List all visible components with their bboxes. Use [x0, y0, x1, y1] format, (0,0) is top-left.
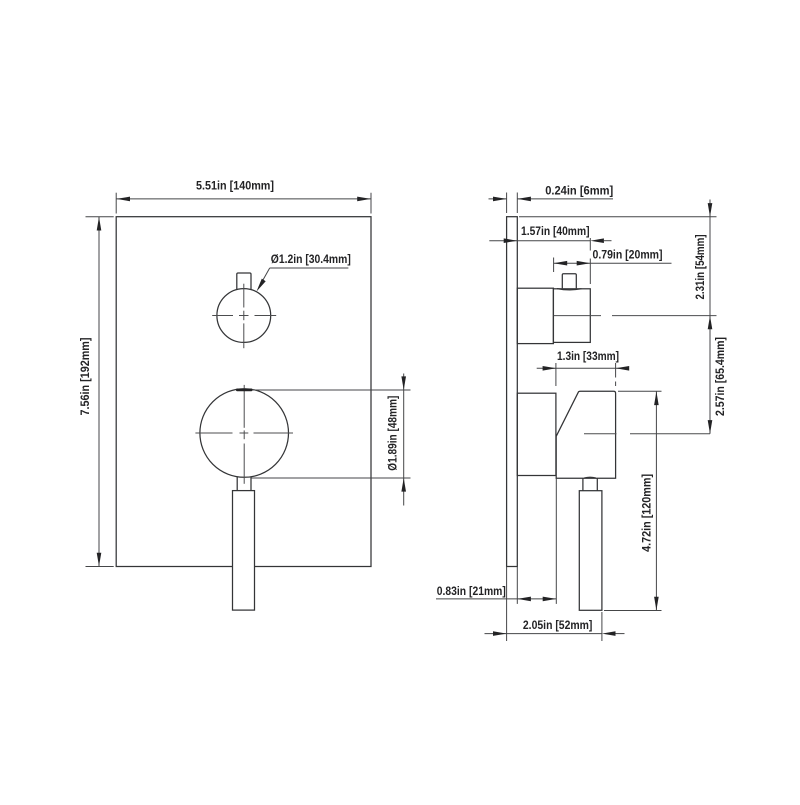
svg-text:0.83in [21mm]: 0.83in [21mm] — [437, 584, 506, 598]
svg-text:Ø1.89in [48mm]: Ø1.89in [48mm] — [386, 396, 400, 471]
svg-text:Ø1.2in [30.4mm]: Ø1.2in [30.4mm] — [271, 252, 351, 266]
svg-text:0.24in [6mm]: 0.24in [6mm] — [545, 184, 613, 198]
svg-text:4.72in [120mm]: 4.72in [120mm] — [639, 474, 653, 552]
svg-text:5.51in [140mm]: 5.51in [140mm] — [196, 179, 274, 193]
svg-text:2.31in [54mm]: 2.31in [54mm] — [693, 235, 707, 300]
svg-text:2.05in [52mm]: 2.05in [52mm] — [523, 618, 593, 632]
svg-text:0.79in [20mm]: 0.79in [20mm] — [593, 247, 663, 261]
svg-text:1.57in [40mm]: 1.57in [40mm] — [521, 224, 590, 238]
svg-text:7.56in [192mm]: 7.56in [192mm] — [78, 338, 92, 416]
svg-text:1.3in [33mm]: 1.3in [33mm] — [557, 349, 619, 363]
svg-text:2.57in [65.4mm]: 2.57in [65.4mm] — [713, 337, 727, 416]
